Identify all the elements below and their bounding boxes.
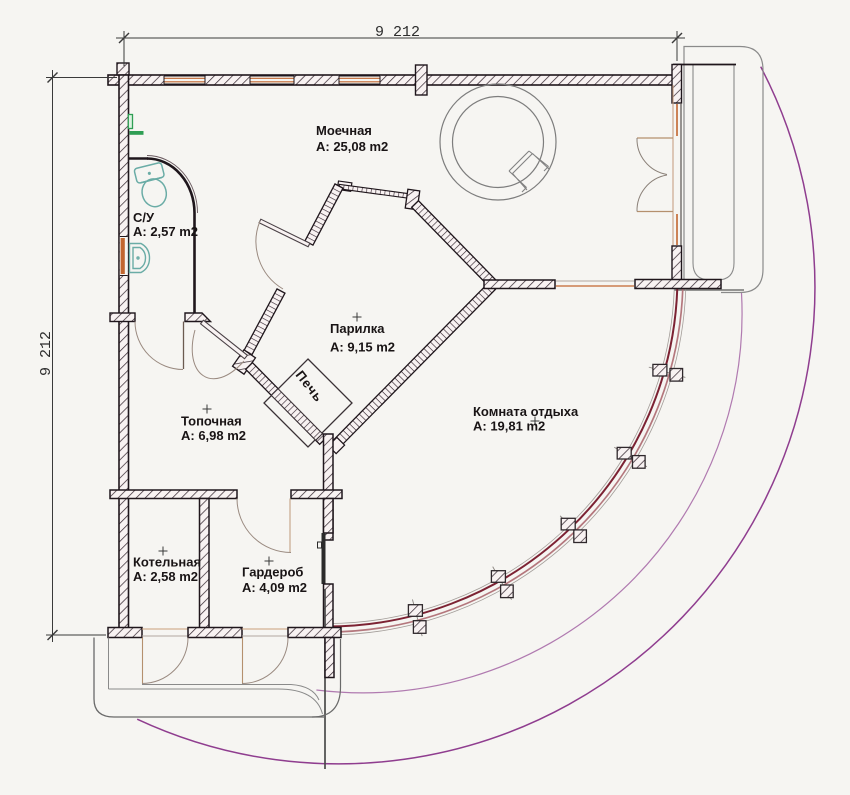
svg-text:Топочная: Топочная — [181, 414, 242, 429]
svg-text:Гардероб: Гардероб — [242, 565, 303, 580]
svg-text:A: 25,08 m2: A: 25,08 m2 — [316, 139, 388, 154]
svg-text:9 212: 9 212 — [38, 331, 55, 376]
svg-text:Котельная: Котельная — [133, 555, 201, 570]
svg-text:Комната отдыха: Комната отдыха — [473, 404, 579, 419]
svg-text:9 212: 9 212 — [375, 24, 420, 41]
svg-text:A: 6,98 m2: A: 6,98 m2 — [181, 428, 246, 443]
svg-text:A: 4,09 m2: A: 4,09 m2 — [242, 580, 307, 595]
svg-text:С/У: С/У — [133, 210, 155, 225]
svg-text:Моечная: Моечная — [316, 123, 372, 138]
svg-text:A: 19,81 m2: A: 19,81 m2 — [473, 419, 545, 434]
svg-text:Парилка: Парилка — [330, 321, 385, 336]
svg-text:A: 2,58 m2: A: 2,58 m2 — [133, 569, 198, 584]
svg-text:A: 2,57 m2: A: 2,57 m2 — [133, 224, 198, 239]
svg-text:A: 9,15 m2: A: 9,15 m2 — [330, 340, 395, 355]
